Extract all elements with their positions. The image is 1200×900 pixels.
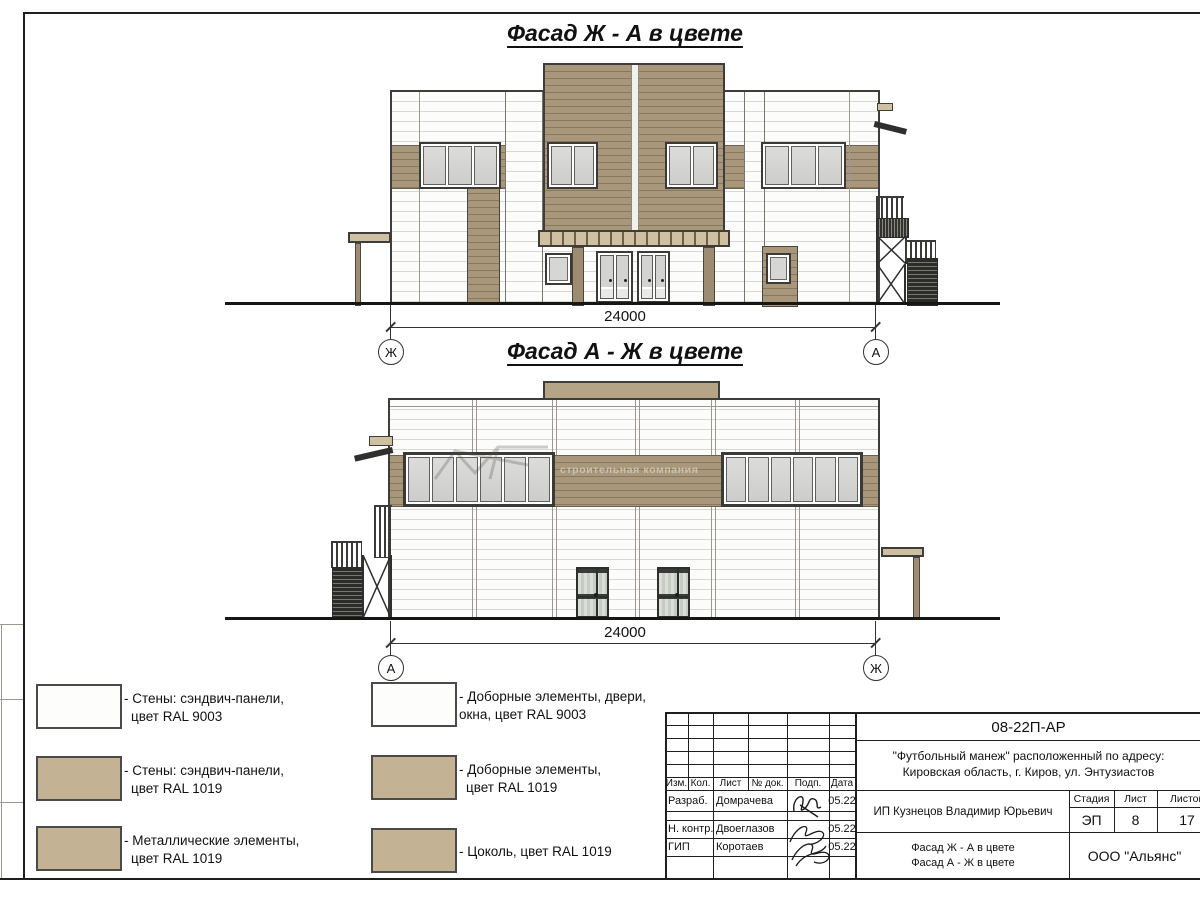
extension-line <box>390 305 391 341</box>
door-leaf <box>655 255 667 299</box>
stamp-role: Н. контр. <box>668 820 714 838</box>
facade1-stair-brace <box>876 236 907 264</box>
door-glass <box>642 256 652 289</box>
legend-swatch <box>36 756 122 801</box>
door-kick-panel <box>656 289 666 298</box>
window-pane <box>693 146 715 185</box>
panel-joint <box>795 400 796 618</box>
stamp-doc-number: 08-22П-АР <box>857 714 1200 740</box>
facade1-window-1 <box>419 142 501 189</box>
door-rail <box>659 594 688 599</box>
legend-swatch <box>371 828 457 873</box>
window-pane <box>748 457 768 502</box>
margin-strip-line <box>0 802 23 803</box>
facade1-entrance-door-1 <box>596 251 633 303</box>
facade2-wall <box>388 398 880 620</box>
legend-label: - Цоколь, цвет RAL 1019 <box>459 843 612 861</box>
watermark-logo <box>430 443 555 485</box>
facade1-stair-flight <box>876 218 909 238</box>
door-glass <box>617 256 629 289</box>
canopy-post <box>355 243 361 306</box>
stamp-date: 05.22 <box>829 790 855 811</box>
stamp-line <box>855 740 1200 741</box>
window-pane <box>793 457 813 502</box>
door-handle <box>675 593 679 597</box>
stamp-company: ООО "Альянс" <box>1069 834 1200 878</box>
panel-joint <box>849 92 850 302</box>
stamp-line <box>713 712 714 878</box>
stamp-stage-value: ЭП <box>1069 807 1114 832</box>
facade1-left-canopy <box>348 232 391 243</box>
window-pane <box>551 146 572 185</box>
facade1-side-window-left <box>545 253 572 285</box>
facade2-window-strip-right <box>721 452 863 507</box>
facade2-stair-railing <box>331 541 362 568</box>
facade1-roof-ledge <box>877 103 893 111</box>
facade1-stair-brace <box>876 264 906 304</box>
panel-joint <box>635 400 636 618</box>
facade1-side-window-right <box>766 253 791 284</box>
legend-label: - Стены: сэндвич-панели,цвет RAL 1019 <box>124 762 284 798</box>
stamp-sheet-value: 8 <box>1114 807 1157 832</box>
window-pane <box>791 146 815 185</box>
window-pane <box>408 457 430 502</box>
door-leaf <box>616 255 630 299</box>
stamp-date: 05.22 <box>829 820 855 838</box>
facade1-axis-right: А <box>863 339 889 365</box>
legend-swatch <box>36 826 122 871</box>
signature-1 <box>788 791 830 819</box>
window-pane <box>771 457 791 502</box>
facade1-panel-channel <box>505 92 543 302</box>
facade2-axis-left: А <box>378 655 404 681</box>
legend-label: - Доборные элементы,цвет RAL 1019 <box>459 761 601 797</box>
extension-line <box>875 621 876 657</box>
extension-line <box>875 305 876 341</box>
stamp-sheets-value: 17 <box>1157 807 1200 832</box>
panel-joint <box>639 400 640 618</box>
margin-strip-line <box>1 624 2 878</box>
window-pane <box>765 146 789 185</box>
door-glass <box>656 256 666 289</box>
drawing-sheet: Фасад Ж - А в цвете <box>0 0 1200 900</box>
window-pane <box>838 457 858 502</box>
facade2-ground-line <box>225 617 1000 620</box>
frame-bottom-line <box>0 878 1200 880</box>
legend-swatch <box>36 684 122 729</box>
panel-joint <box>419 92 420 302</box>
door-header <box>659 569 688 573</box>
door-kick-panel <box>642 289 652 298</box>
panel-joint <box>390 406 878 407</box>
window-pane <box>448 146 471 185</box>
facade1-window-4 <box>761 142 846 189</box>
stamp-line <box>665 751 855 752</box>
stamp-date: 05.22 <box>829 838 855 856</box>
stamp-line <box>665 725 855 726</box>
stamp-sheets-label: Листов <box>1157 790 1200 807</box>
facade1-window-3 <box>665 142 718 189</box>
facade1-tower-seam <box>631 65 639 230</box>
panel-joint <box>799 400 800 618</box>
facade2-roof-ledge <box>369 436 393 446</box>
door-kick-panel <box>601 289 613 298</box>
watermark-text: строительная компания <box>560 464 720 476</box>
stamp-col-doc: № док. <box>748 777 787 790</box>
panel-joint <box>711 400 712 618</box>
facade2-door-2 <box>657 567 690 618</box>
stamp-col-list: Лист <box>713 777 748 790</box>
margin-strip-line <box>0 624 23 625</box>
door-leaf <box>600 255 614 299</box>
stamp-name: Коротаев <box>716 838 786 856</box>
stamp-line <box>855 832 1200 833</box>
window-pane <box>574 146 595 185</box>
stamp-col-kol: Кол. <box>688 777 713 790</box>
stamp-col-data: Дата <box>829 777 855 790</box>
window-pane <box>815 457 835 502</box>
facade2-title: Фасад А - Ж в цвете <box>400 338 850 365</box>
window-pane <box>423 146 446 185</box>
facade1-tan-strip <box>467 187 500 304</box>
facade2-stair-brace <box>362 555 392 618</box>
stamp-col-podp: Подп. <box>787 777 829 790</box>
margin-strip-line <box>0 699 23 700</box>
stamp-project: "Футбольный манеж" расположенный по адре… <box>857 742 1200 788</box>
stamp-stage-label: Стадия <box>1069 790 1114 807</box>
signature-2 <box>786 816 832 870</box>
canopy-post <box>913 557 920 620</box>
legend-label: - Металлические элементы,цвет RAL 1019 <box>124 832 299 868</box>
frame-top-line <box>23 12 1200 14</box>
facade2-dimension-line <box>390 643 875 644</box>
stamp-sheet-label: Лист <box>1114 790 1157 807</box>
facade1-entrance-door-2 <box>637 251 670 303</box>
window-pane <box>474 146 497 185</box>
stamp-role: ГИП <box>668 838 712 856</box>
stamp-name: Домрачева <box>716 790 786 811</box>
legend-label: - Стены: сэндвич-панели,цвет RAL 9003 <box>124 690 284 726</box>
door-leaf <box>641 255 653 299</box>
door-kick-panel <box>617 289 629 298</box>
panel-joint <box>556 400 557 618</box>
stamp-name: Двоеглазов <box>716 820 786 838</box>
facade2-stair-railing <box>374 505 392 558</box>
door-rail <box>578 594 607 599</box>
panel-joint <box>476 400 477 618</box>
legend-swatch <box>371 682 457 727</box>
panel-joint <box>715 400 716 618</box>
stamp-line <box>665 764 855 765</box>
window-pane <box>726 457 746 502</box>
legend-swatch <box>371 755 457 800</box>
facade1-dimension-line <box>390 327 875 328</box>
door-glass <box>601 256 613 289</box>
stamp-col-izm: Изм. <box>665 777 688 790</box>
door-header <box>578 569 607 573</box>
canopy-post <box>572 247 584 306</box>
window-pane <box>669 146 691 185</box>
window-pane <box>818 146 842 185</box>
door-handle <box>594 593 598 597</box>
panel-joint <box>552 400 553 618</box>
stamp-client: ИП Кузнецов Владимир Юрьевич <box>857 792 1069 832</box>
facade1-ground-line <box>225 302 1000 305</box>
stamp-drawing-title: Фасад Ж - А в цвете Фасад А - Ж в цвете <box>857 834 1069 878</box>
facade1-dimension-label: 24000 <box>558 308 692 325</box>
stamp-line <box>665 712 667 878</box>
extension-line <box>390 621 391 657</box>
facade2-stair-treads <box>332 567 363 620</box>
facade1-entrance-canopy <box>538 230 730 247</box>
panel-joint <box>472 400 473 618</box>
facade2-dimension-label: 24000 <box>558 624 692 641</box>
facade1-window-2 <box>547 142 598 189</box>
facade2-door-1 <box>576 567 609 618</box>
stamp-role: Разраб. <box>668 790 712 811</box>
facade2-axis-right: Ж <box>863 655 889 681</box>
facade1-title: Фасад Ж - А в цвете <box>400 20 850 47</box>
frame-left-line <box>23 12 25 878</box>
legend-label: - Доборные элементы, двери,окна, цвет RA… <box>459 688 646 724</box>
canopy-post <box>703 247 715 306</box>
facade1-stair-treads <box>907 258 938 306</box>
stamp-line <box>665 738 855 739</box>
facade2-right-canopy <box>881 547 924 557</box>
